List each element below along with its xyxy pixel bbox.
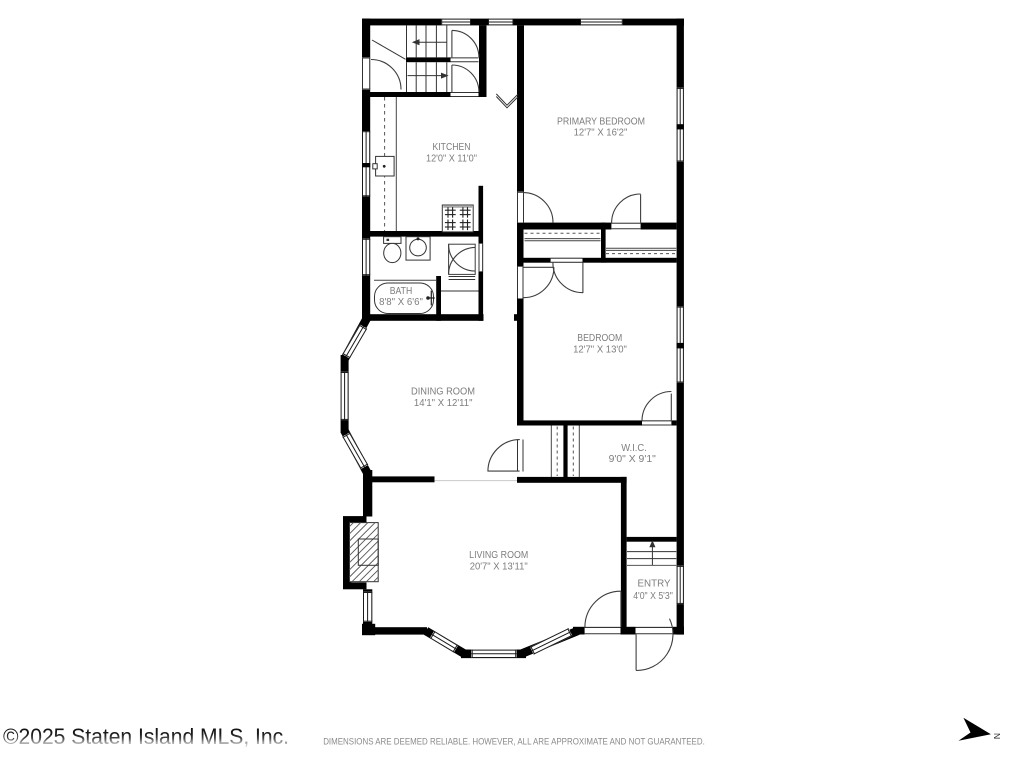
svg-text:BATH: BATH bbox=[390, 286, 413, 297]
svg-text:BEDROOM: BEDROOM bbox=[577, 333, 622, 344]
svg-text:14'1" X 12'11": 14'1" X 12'11" bbox=[414, 398, 473, 409]
svg-text:12'7" X 13'0": 12'7" X 13'0" bbox=[573, 345, 627, 356]
svg-text:DINING ROOM: DINING ROOM bbox=[411, 387, 475, 398]
svg-text:N: N bbox=[992, 733, 1002, 739]
svg-text:KITCHEN: KITCHEN bbox=[433, 142, 471, 153]
svg-text:20'7" X 13'11": 20'7" X 13'11" bbox=[470, 562, 528, 573]
svg-text:ENTRY: ENTRY bbox=[638, 579, 671, 590]
svg-text:8'8" X 6'6": 8'8" X 6'6" bbox=[379, 297, 423, 308]
svg-text:12'0" X 11'0": 12'0" X 11'0" bbox=[426, 153, 477, 164]
svg-text:©2025 Staten Island MLS, Inc.: ©2025 Staten Island MLS, Inc. bbox=[3, 724, 289, 749]
svg-text:12'7" X 16'2": 12'7" X 16'2" bbox=[574, 128, 628, 139]
svg-text:DIMENSIONS ARE DEEMED RELIABLE: DIMENSIONS ARE DEEMED RELIABLE. HOWEVER,… bbox=[323, 736, 705, 747]
svg-text:4'0" X 5'3": 4'0" X 5'3" bbox=[633, 591, 673, 602]
svg-text:PRIMARY BEDROOM: PRIMARY BEDROOM bbox=[557, 117, 645, 128]
svg-text:LIVING ROOM: LIVING ROOM bbox=[469, 550, 528, 561]
svg-text:W.I.C.: W.I.C. bbox=[621, 443, 647, 454]
svg-text:9'0" X 9'1": 9'0" X 9'1" bbox=[609, 454, 657, 465]
